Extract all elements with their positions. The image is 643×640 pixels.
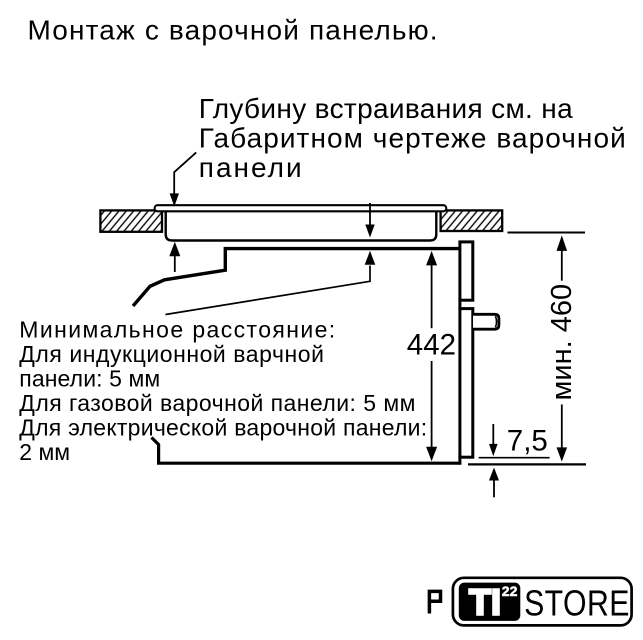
svg-text:Монтаж с варочной панелью.: Монтаж с варочной панелью.	[28, 15, 439, 46]
svg-text:TI: TI	[469, 582, 501, 623]
svg-text:7,5: 7,5	[507, 424, 548, 457]
svg-text:STORE: STORE	[524, 584, 630, 624]
svg-text:Минимальное расстояние: Для ин: Минимальное расстояние: Для индукционной…	[19, 317, 433, 466]
svg-text:22: 22	[502, 583, 518, 599]
svg-text:442: 442	[407, 329, 456, 362]
svg-text:Глубину встраивания см. на Габ: Глубину встраивания см. на Габаритном че…	[199, 93, 635, 183]
svg-text:мин. 460: мин. 460	[546, 284, 578, 401]
